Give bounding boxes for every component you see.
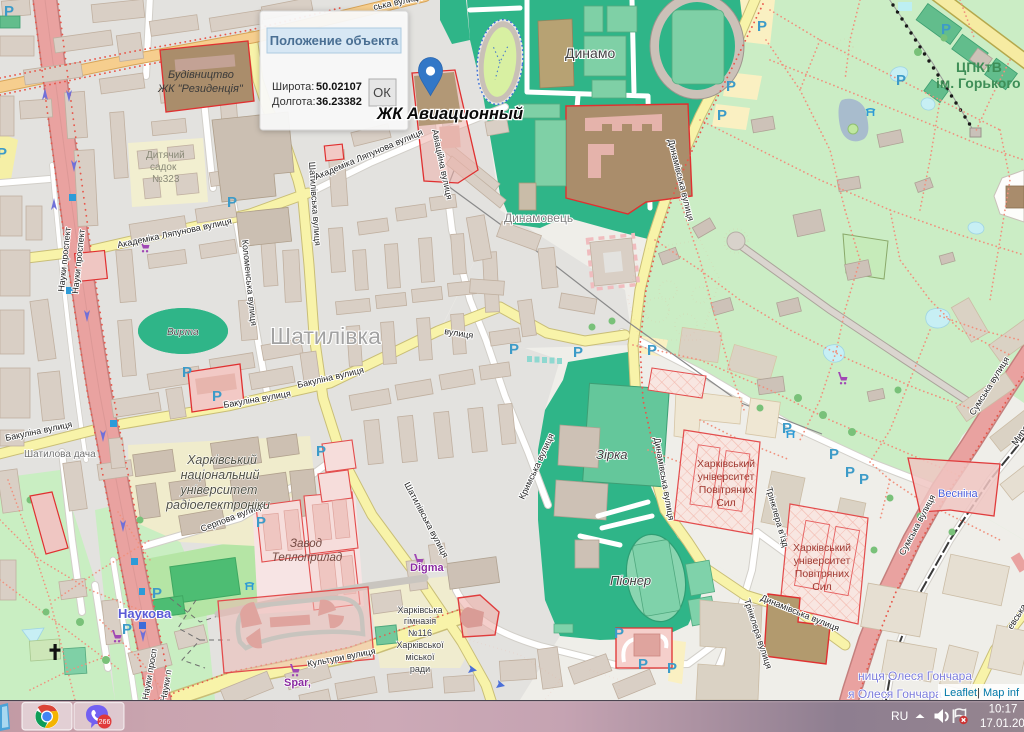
svg-text:Повітряних: Повітряних: [795, 568, 850, 580]
svg-text:Піонер: Піонер: [610, 573, 651, 588]
svg-text:P: P: [638, 656, 648, 673]
svg-text:Map inf: Map inf: [983, 687, 1020, 699]
svg-text:P: P: [647, 342, 657, 359]
svg-text:Харківський: Харківський: [186, 453, 257, 467]
svg-text:P: P: [212, 388, 222, 405]
svg-text:P: P: [573, 344, 583, 361]
svg-text:Долгота:: Долгота:: [272, 96, 316, 108]
svg-text:гімназія: гімназія: [404, 616, 436, 626]
svg-text:ЖК Авиационный: ЖК Авиационный: [376, 105, 523, 123]
svg-text:Динамо: Динамо: [565, 45, 615, 61]
svg-text:P: P: [941, 21, 951, 38]
svg-text:Положение объекта: Положение объекта: [270, 33, 399, 48]
svg-text:ЖК "Резиденція": ЖК "Резиденція": [157, 83, 244, 95]
svg-text:P: P: [757, 18, 767, 35]
svg-text:P: P: [152, 585, 162, 602]
svg-text:Повітряних: Повітряних: [699, 484, 754, 496]
svg-text:Сил: Сил: [716, 497, 736, 509]
svg-text:садок: садок: [150, 162, 177, 173]
svg-text:ниця Олеся Гончара: ниця Олеся Гончара: [858, 669, 972, 683]
svg-text:Наукова: Наукова: [118, 606, 172, 621]
svg-text:Весніна: Весніна: [938, 488, 979, 500]
svg-text:національний: національний: [181, 468, 260, 482]
svg-text:я Олеся Гончара: я Олеся Гончара: [848, 687, 942, 701]
svg-text:P: P: [122, 621, 132, 638]
svg-text:Харківський: Харківський: [793, 542, 851, 554]
svg-text:36.23382: 36.23382: [316, 96, 362, 108]
svg-text:Вирта: Вирта: [167, 327, 199, 338]
svg-text:Теплоприлад: Теплоприлад: [272, 552, 343, 564]
svg-text:університет: університет: [794, 555, 851, 567]
svg-text:P: P: [4, 3, 14, 20]
svg-text:P: P: [859, 471, 869, 488]
svg-text:ради: ради: [410, 664, 430, 674]
svg-text:ОК: ОК: [373, 85, 391, 100]
svg-text:17.01.2022: 17.01.2022: [980, 718, 1024, 730]
svg-text:P: P: [829, 446, 839, 463]
svg-text:ім. Горького: ім. Горького: [936, 75, 1021, 91]
svg-text:Завод: Завод: [290, 538, 322, 550]
svg-text:Зірка: Зірка: [596, 447, 627, 462]
svg-text:Шатилівка: Шатилівка: [270, 323, 381, 349]
svg-text:P: P: [896, 72, 906, 89]
svg-text:Сил: Сил: [812, 581, 832, 593]
svg-text:університет: університет: [698, 471, 755, 483]
svg-text:P: P: [667, 660, 677, 677]
svg-text:Будівництво: Будівництво: [168, 69, 234, 81]
svg-text:P: P: [717, 107, 727, 124]
svg-text:RU: RU: [891, 709, 908, 723]
svg-text:університет: університет: [180, 483, 258, 497]
svg-text:Digma: Digma: [410, 562, 445, 574]
svg-text:міської: міської: [406, 652, 435, 662]
svg-text:Дитячий: Дитячий: [146, 150, 185, 161]
svg-text:Динамовець: Динамовець: [504, 211, 573, 225]
svg-text:радіоелектроніки: радіоелектроніки: [165, 498, 270, 512]
svg-text:P: P: [256, 514, 266, 531]
svg-text:№323: №323: [152, 174, 180, 185]
svg-text:P: P: [227, 194, 237, 211]
svg-text:P: P: [316, 443, 326, 460]
svg-text:Харківської: Харківської: [396, 640, 444, 650]
svg-text:Шатилова дача: Шатилова дача: [24, 449, 96, 460]
svg-text:P: P: [0, 145, 7, 162]
svg-text:266: 266: [99, 719, 111, 726]
svg-text:Харківська: Харківська: [398, 605, 443, 615]
svg-text:P: P: [726, 78, 736, 95]
svg-text:P: P: [182, 364, 192, 381]
svg-text:Широта:: Широта:: [272, 81, 314, 93]
svg-text:10:17: 10:17: [989, 704, 1018, 716]
svg-text:ЦПКтВ: ЦПКтВ: [956, 59, 1002, 75]
svg-text:Харківський: Харківський: [697, 458, 755, 470]
svg-text:P: P: [845, 464, 855, 481]
svg-text:|: |: [977, 687, 980, 699]
svg-text:50.02107: 50.02107: [316, 81, 362, 93]
svg-text:P: P: [614, 625, 624, 642]
svg-text:Spar,: Spar,: [284, 677, 311, 689]
svg-text:P: P: [509, 341, 519, 358]
svg-text:Leaflet: Leaflet: [944, 687, 977, 699]
svg-text:№116: №116: [408, 628, 432, 638]
